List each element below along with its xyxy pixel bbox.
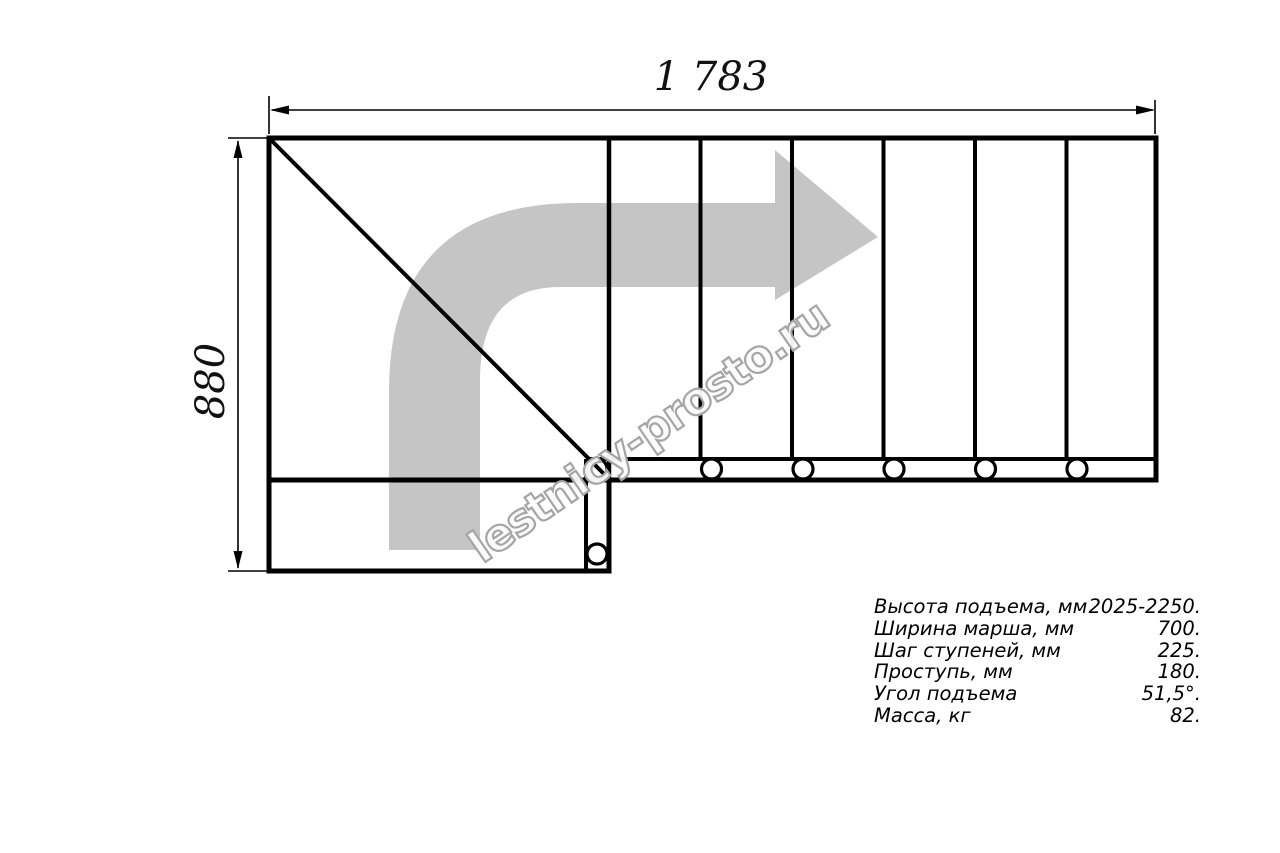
spec-value: 82.	[1170, 705, 1201, 727]
spec-row-step-pitch: Шаг ступеней, мм 225.	[874, 640, 1201, 662]
spec-value: 225.	[1158, 640, 1201, 662]
spec-value: 51,5°.	[1142, 683, 1201, 705]
baluster-hole	[793, 459, 813, 479]
spec-label: Угол подъема	[874, 683, 1017, 705]
spec-label: Шаг ступеней, мм	[874, 640, 1061, 662]
baluster-hole	[702, 459, 722, 479]
dimension-arrowhead-left	[270, 106, 289, 115]
spec-row-rise-height: Высота подъема, мм 2025-2250.	[874, 596, 1201, 618]
spec-row-rise-angle: Угол подъема 51,5°.	[874, 683, 1201, 705]
spec-row-mass: Масса, кг 82.	[874, 705, 1201, 727]
baluster-hole	[976, 459, 996, 479]
spec-row-tread: Проступь, мм 180.	[874, 661, 1201, 683]
spec-value: 2025-2250.	[1089, 596, 1202, 618]
baluster-hole	[587, 544, 607, 564]
baluster-hole	[884, 459, 904, 479]
baluster-hole	[1067, 459, 1087, 479]
spec-value: 700.	[1158, 618, 1201, 640]
spec-label: Масса, кг	[874, 705, 971, 727]
spec-label: Ширина марша, мм	[874, 618, 1074, 640]
dimension-arrowhead-bottom	[234, 551, 243, 569]
spec-label: Высота подъема, мм	[874, 596, 1087, 618]
width-dimension-label: 1 783	[654, 54, 769, 100]
specs-table: Высота подъема, мм 2025-2250. Ширина мар…	[874, 596, 1201, 727]
dimension-arrowhead-right	[1136, 106, 1155, 115]
spec-row-flight-width: Ширина марша, мм 700.	[874, 618, 1201, 640]
dimension-arrowhead-top	[234, 140, 243, 158]
spec-value: 180.	[1158, 661, 1201, 683]
staircase-plan-page: 1 783 880 lestnicy-prosto.ru Высота подъ…	[0, 0, 1280, 853]
spec-label: Проступь, мм	[874, 661, 1013, 683]
height-dimension-label: 880	[188, 343, 234, 419]
